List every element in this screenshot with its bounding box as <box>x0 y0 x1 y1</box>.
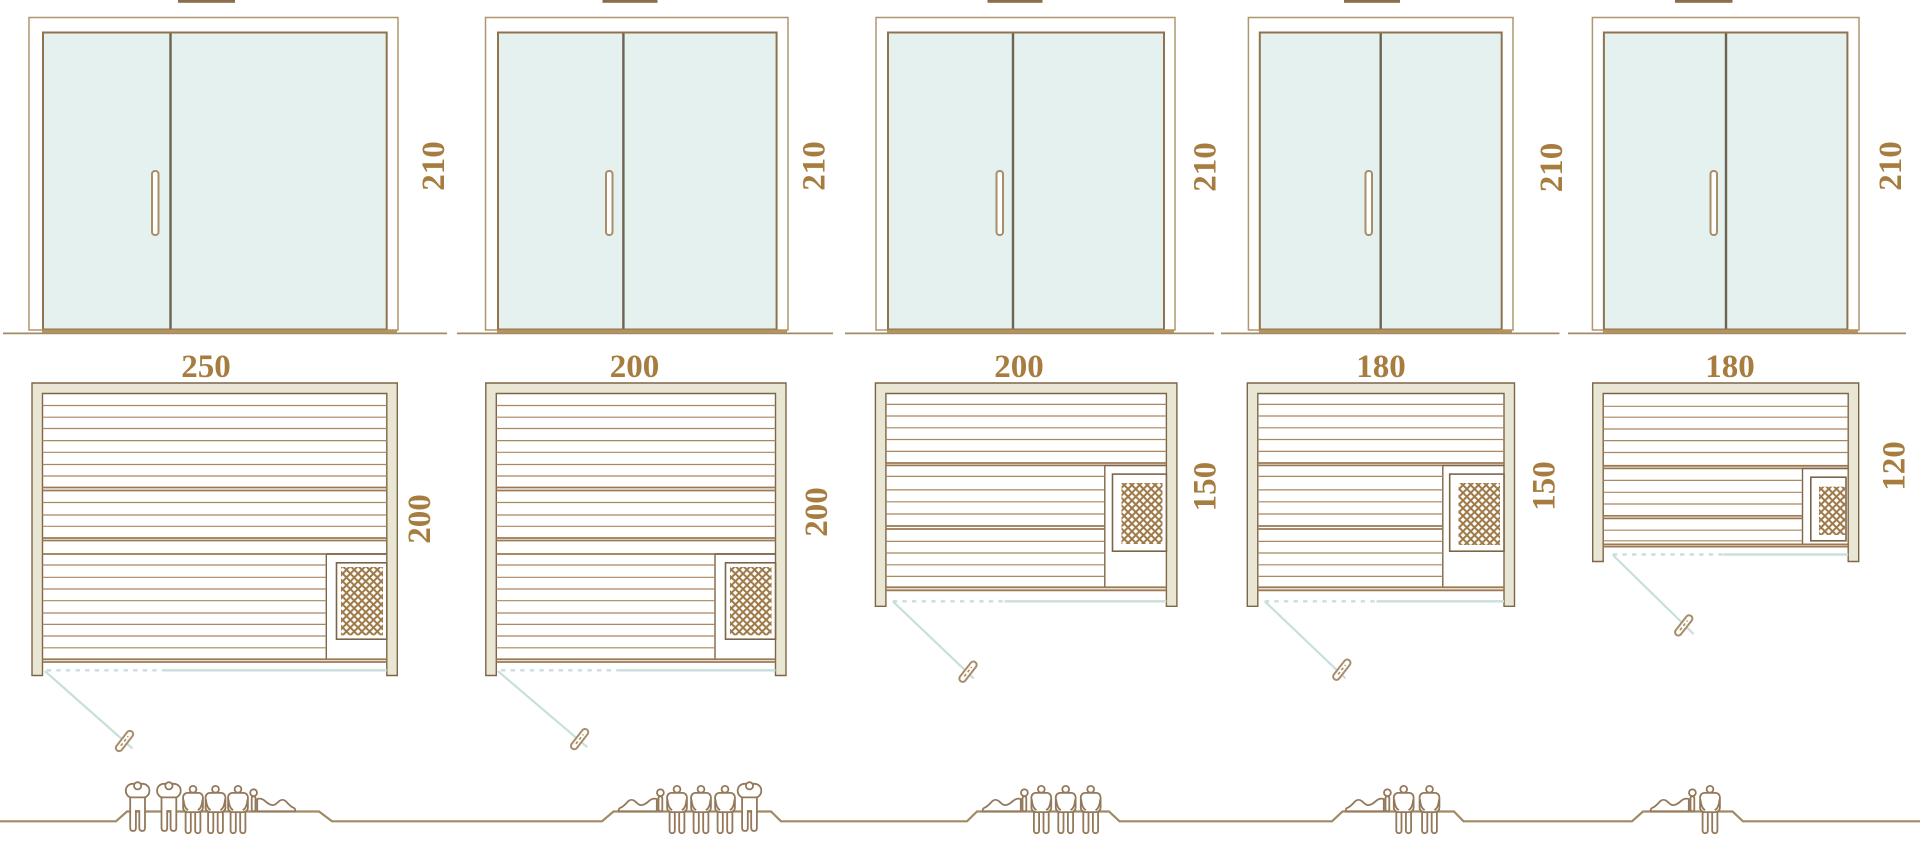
svg-text:200: 200 <box>402 494 438 544</box>
svg-text:150: 150 <box>1527 461 1563 511</box>
svg-text:180: 180 <box>1705 349 1755 385</box>
svg-text:200: 200 <box>610 349 660 385</box>
svg-text:210: 210 <box>1534 143 1570 193</box>
svg-text:120: 120 <box>1877 441 1913 491</box>
svg-text:210: 210 <box>797 141 833 191</box>
svg-text:200: 200 <box>799 487 835 537</box>
svg-text:250: 250 <box>181 349 231 385</box>
svg-text:210: 210 <box>1873 141 1909 191</box>
svg-text:150: 150 <box>1188 462 1224 512</box>
svg-text:200: 200 <box>994 349 1044 385</box>
svg-text:210: 210 <box>1188 142 1224 192</box>
svg-text:210: 210 <box>416 141 452 191</box>
svg-text:180: 180 <box>1356 349 1406 385</box>
